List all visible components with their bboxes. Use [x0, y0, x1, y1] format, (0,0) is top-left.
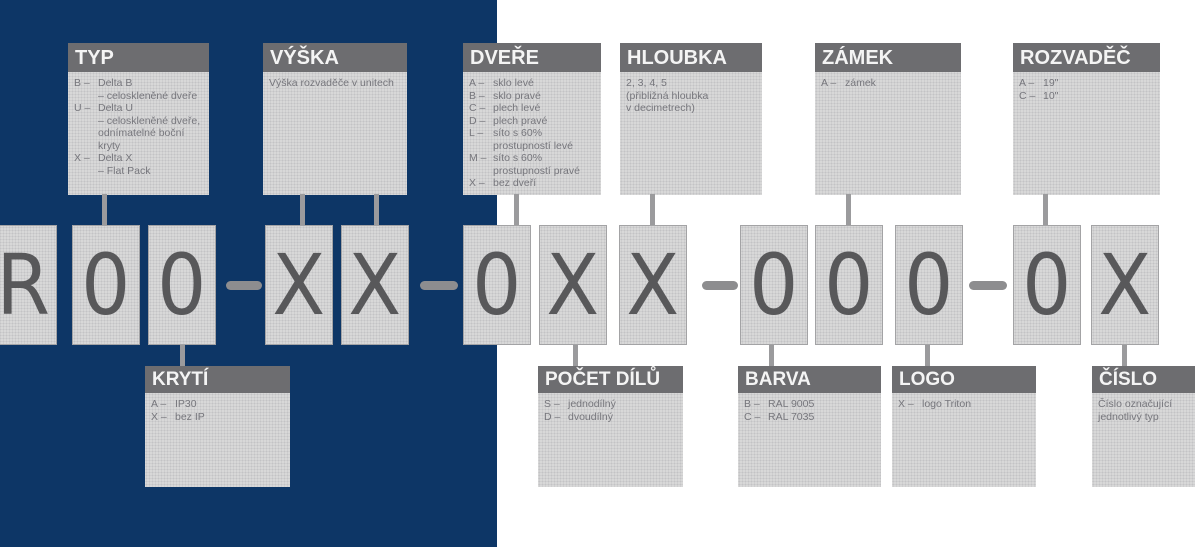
label-box-barva: BARVA B –RAL 9005C –RAL 7035: [738, 366, 881, 487]
code-box-3: 0: [148, 225, 216, 345]
label-title-vyska: VÝŠKA: [263, 43, 407, 72]
code-box-9: 0: [740, 225, 808, 345]
label-title-cislo: ČÍSLO: [1092, 366, 1195, 393]
label-body-dvere: A –sklo levéB –sklo pravéC –plech levéD …: [463, 72, 601, 195]
label-title-pocet-dilu: POČET DÍLŮ: [538, 366, 683, 393]
label-title-typ: TYP: [68, 43, 209, 72]
definition-line: B –sklo pravé: [469, 90, 595, 103]
code-box-1: R: [0, 225, 57, 345]
code-box-12: 0: [1013, 225, 1081, 345]
label-title-zamek: ZÁMEK: [815, 43, 961, 72]
code-box-2: 0: [72, 225, 140, 345]
label-box-pocet-dilu: POČET DÍLŮ S –jednodílnýD –dvoudílný: [538, 366, 683, 487]
definition-line: (přibližná hloubka: [626, 90, 756, 103]
connector-barva: [769, 345, 774, 366]
code-separator-4: [969, 281, 1007, 290]
definition-line: A –19": [1019, 77, 1154, 90]
definition-line: X –bez dveří: [469, 177, 595, 190]
code-box-4: X: [265, 225, 333, 345]
code-box-7: X: [539, 225, 607, 345]
label-title-logo: LOGO: [892, 366, 1036, 393]
connector-kryti: [180, 345, 185, 366]
connector-vyska-1: [300, 194, 305, 225]
definition-line: – celoskleněné dveře: [74, 90, 203, 103]
code-char-vyska-1: X: [273, 243, 326, 327]
code-char-rozvadec: 0: [1022, 243, 1071, 327]
label-box-zamek: ZÁMEK A –zámek: [815, 43, 961, 195]
connector-dvere: [514, 194, 519, 225]
label-body-logo: X –logo Triton: [892, 393, 1036, 487]
code-char-pocet-dilu: X: [547, 243, 600, 327]
label-body-kryti: A –IP30X –bez IP: [145, 393, 290, 487]
connector-vyska-2: [374, 194, 379, 225]
label-body-zamek: A –zámek: [815, 72, 961, 195]
connector-typ: [102, 194, 107, 225]
connector-zamek: [846, 194, 851, 225]
label-title-dvere: DVEŘE: [463, 43, 601, 72]
definition-line: kryty: [74, 140, 203, 153]
definition-line: prostupností levé: [469, 140, 595, 153]
label-box-dvere: DVEŘE A –sklo levéB –sklo pravéC –plech …: [463, 43, 601, 195]
naming-scheme-diagram: TYP B –Delta B– celoskleněné dveřeU –Del…: [0, 0, 1195, 547]
definition-line: prostupností pravé: [469, 165, 595, 178]
code-char-zamek: 0: [824, 243, 873, 327]
label-body-hloubka: 2, 3, 4, 5(přibližná hloubkav decimetrec…: [620, 72, 762, 195]
label-body-cislo: Číslo označujícíjednotlivý typ: [1092, 393, 1195, 487]
definition-line: X –Delta X: [74, 152, 203, 165]
label-box-vyska: VÝŠKA Výška rozvaděče v unitech: [263, 43, 407, 195]
label-body-typ: B –Delta B– celoskleněné dveřeU –Delta U…: [68, 72, 209, 195]
label-body-vyska: Výška rozvaděče v unitech: [263, 72, 407, 195]
definition-line: A –sklo levé: [469, 77, 595, 90]
connector-hloubka: [650, 194, 655, 225]
label-box-kryti: KRYTÍ A –IP30X –bez IP: [145, 366, 290, 487]
code-char-dvere: 0: [472, 243, 521, 327]
label-title-kryti: KRYTÍ: [145, 366, 290, 393]
definition-line: D –dvoudílný: [544, 411, 677, 424]
definition-line: C –10": [1019, 90, 1154, 103]
connector-pocet-dilu: [573, 345, 578, 366]
definition-line: S –jednodílný: [544, 398, 677, 411]
label-body-pocet-dilu: S –jednodílnýD –dvoudílný: [538, 393, 683, 487]
definition-line: U –Delta U: [74, 102, 203, 115]
label-box-cislo: ČÍSLO Číslo označujícíjednotlivý typ: [1092, 366, 1195, 487]
label-box-hloubka: HLOUBKA 2, 3, 4, 5(přibližná hloubkav de…: [620, 43, 762, 195]
connector-cislo: [1122, 345, 1127, 366]
connector-logo: [925, 345, 930, 366]
code-char-kryti: 0: [157, 243, 206, 327]
code-box-5: X: [341, 225, 409, 345]
definition-line: Číslo označující: [1098, 398, 1195, 411]
definition-line: – celoskleněné dveře,: [74, 115, 203, 128]
definition-line: C –plech levé: [469, 102, 595, 115]
definition-line: D –plech pravé: [469, 115, 595, 128]
definition-line: Výška rozvaděče v unitech: [269, 77, 401, 90]
definition-line: C –RAL 7035: [744, 411, 875, 424]
label-title-hloubka: HLOUBKA: [620, 43, 762, 72]
code-char-typ: 0: [81, 243, 130, 327]
definition-line: X –bez IP: [151, 411, 284, 424]
code-char-hloubka: X: [627, 243, 680, 327]
label-body-barva: B –RAL 9005C –RAL 7035: [738, 393, 881, 487]
code-box-11: 0: [895, 225, 963, 345]
connector-rozvadec: [1043, 194, 1048, 225]
code-char-barva: 0: [749, 243, 798, 327]
label-body-rozvadec: A –19"C –10": [1013, 72, 1160, 195]
definition-line: v decimetrech): [626, 102, 756, 115]
definition-line: odnímatelné boční: [74, 127, 203, 140]
definition-line: A –IP30: [151, 398, 284, 411]
code-separator-2: [420, 281, 458, 290]
code-box-13: X: [1091, 225, 1159, 345]
code-char-r: R: [0, 243, 50, 327]
label-title-barva: BARVA: [738, 366, 881, 393]
label-box-typ: TYP B –Delta B– celoskleněné dveřeU –Del…: [68, 43, 209, 195]
code-box-8: X: [619, 225, 687, 345]
definition-line: B –RAL 9005: [744, 398, 875, 411]
code-box-10: 0: [815, 225, 883, 345]
label-box-logo: LOGO X –logo Triton: [892, 366, 1036, 487]
label-box-rozvadec: ROZVADĚČ A –19"C –10": [1013, 43, 1160, 195]
code-char-cislo: X: [1099, 243, 1152, 327]
code-char-logo: 0: [904, 243, 953, 327]
code-box-6: 0: [463, 225, 531, 345]
definition-line: – Flat Pack: [74, 165, 203, 178]
definition-line: L –síto s 60%: [469, 127, 595, 140]
code-char-vyska-2: X: [349, 243, 402, 327]
definition-line: A –zámek: [821, 77, 955, 90]
definition-line: B –Delta B: [74, 77, 203, 90]
definition-line: M –síto s 60%: [469, 152, 595, 165]
definition-line: X –logo Triton: [898, 398, 1030, 411]
label-title-rozvadec: ROZVADĚČ: [1013, 43, 1160, 72]
definition-line: jednotlivý typ: [1098, 411, 1195, 424]
definition-line: 2, 3, 4, 5: [626, 77, 756, 90]
code-separator-3: [702, 281, 738, 290]
code-separator-1: [226, 281, 262, 290]
